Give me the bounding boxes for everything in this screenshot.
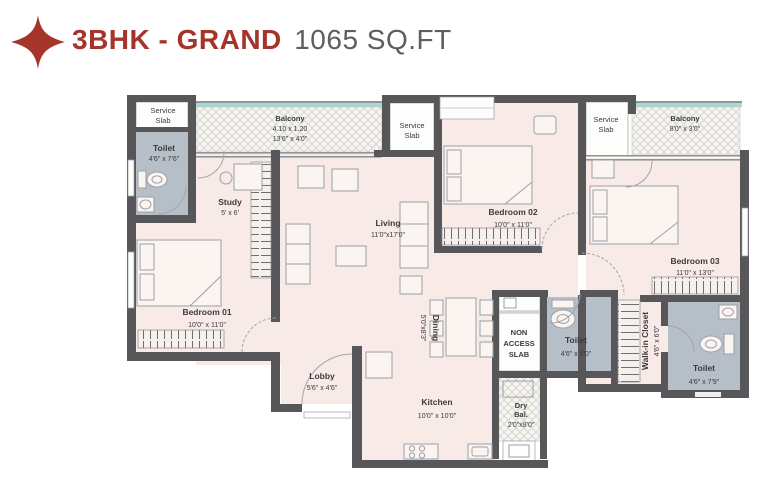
- svg-text:10'0" x 11'0": 10'0" x 11'0": [494, 222, 532, 229]
- svg-text:13'6" x 4'0": 13'6" x 4'0": [273, 136, 308, 143]
- entrance-step: [304, 412, 350, 418]
- washing-machine-icon: [503, 381, 533, 397]
- bedroom02-wardrobe-strip: [442, 228, 540, 245]
- svg-text:4'6" x 7'6": 4'6" x 7'6": [149, 156, 180, 163]
- bedroom03-window-line1: [586, 155, 740, 157]
- balcony-top-window: [196, 103, 382, 107]
- bed-icon-bedroom01: [137, 240, 221, 306]
- toilet-right-vent: [695, 392, 721, 397]
- svg-text:ACCESS: ACCESS: [503, 339, 534, 348]
- kitchen-sink-icon: [468, 444, 492, 459]
- balcony-right-window: [632, 103, 742, 107]
- svg-text:Slab: Slab: [155, 116, 170, 125]
- label-walkin-closet: Walk-in Closet: [640, 312, 650, 370]
- svg-text:8'0" x 3'0": 8'0" x 3'0": [670, 126, 701, 133]
- label-bedroom01: Bedroom 01: [182, 307, 231, 317]
- label-balcony-top: Balcony: [275, 114, 305, 123]
- wc-icon: [138, 171, 167, 188]
- floor-plan-page: 3BHK - GRAND 1065 SQ.FT: [0, 0, 769, 499]
- basin-icon: [719, 305, 737, 319]
- label-bedroom03: Bedroom 03: [670, 256, 719, 266]
- label-service-slab-left: Service: [150, 106, 175, 115]
- balcony-top-outer-line: [196, 101, 382, 103]
- svg-text:2'0"x8'0": 2'0"x8'0": [508, 422, 535, 429]
- bedroom01-window: [128, 252, 134, 308]
- svg-text:Bal.: Bal.: [514, 410, 528, 419]
- label-dry-balcony: Dry: [515, 401, 528, 410]
- basin-nook-box: [499, 295, 540, 311]
- svg-text:11'0"x17'0": 11'0"x17'0": [371, 232, 405, 239]
- svg-text:4'6" x 7'9": 4'6" x 7'9": [689, 379, 720, 386]
- svg-text:4.10 x 1.20: 4.10 x 1.20: [273, 126, 308, 133]
- label-balcony-right: Balcony: [670, 114, 700, 123]
- svg-text:Slab: Slab: [598, 125, 613, 134]
- side-table-icon: [400, 276, 422, 294]
- walkin-closet-strip: [618, 300, 640, 382]
- svg-text:5' x 6': 5' x 6': [221, 210, 239, 217]
- label-bedroom02: Bedroom 02: [488, 207, 537, 217]
- svg-text:4'6" x 6'0": 4'6" x 6'0": [654, 325, 661, 356]
- svg-text:5'6" x 4'6": 5'6" x 4'6": [307, 385, 338, 392]
- svg-text:11'0" x 13'0": 11'0" x 13'0": [676, 270, 714, 277]
- label-lobby: Lobby: [309, 371, 335, 381]
- label-living: Living: [375, 218, 400, 228]
- wc-icon: [700, 334, 734, 354]
- stove-icon: [404, 444, 438, 459]
- label-toilet-topleft: Toilet: [153, 143, 175, 153]
- svg-text:Slab: Slab: [404, 131, 419, 140]
- coffee-table-icon: [336, 246, 366, 266]
- label-toilet-mid: Toilet: [565, 335, 587, 345]
- svg-text:5'0"x8'3": 5'0"x8'3": [419, 315, 426, 342]
- label-study: Study: [218, 197, 242, 207]
- svg-text:4'6" x 6'0": 4'6" x 6'0": [561, 351, 592, 358]
- basin-icon: [137, 197, 154, 212]
- bedroom03-table-icon: [592, 160, 614, 178]
- label-non-access-slab: NON: [511, 328, 528, 337]
- bedroom01-wardrobe-strip: [138, 330, 224, 348]
- toilet-topleft-window: [128, 160, 134, 196]
- label-toilet-right: Toilet: [693, 363, 715, 373]
- balcony-right-outer-line: [632, 101, 742, 103]
- bedroom03-window: [742, 208, 748, 256]
- label-kitchen: Kitchen: [421, 397, 452, 407]
- svg-text:10'0" x 11'0": 10'0" x 11'0": [188, 322, 226, 329]
- label-service-slab-right: Service: [593, 115, 618, 124]
- label-service-slab-mid: Service: [399, 121, 424, 130]
- fridge-icon: [366, 352, 392, 378]
- svg-text:10'0" x 10'0": 10'0" x 10'0": [418, 413, 457, 420]
- label-dining: Dining: [431, 315, 441, 341]
- floor-plan: Service Slab Toilet 4'6" x 7'6" Balcony …: [0, 0, 769, 499]
- bedroom02-stool-icon: [534, 116, 556, 134]
- bedroom03-wardrobe-strip: [652, 277, 738, 294]
- utility-sink-box: [503, 441, 535, 461]
- svg-text:SLAB: SLAB: [509, 350, 530, 359]
